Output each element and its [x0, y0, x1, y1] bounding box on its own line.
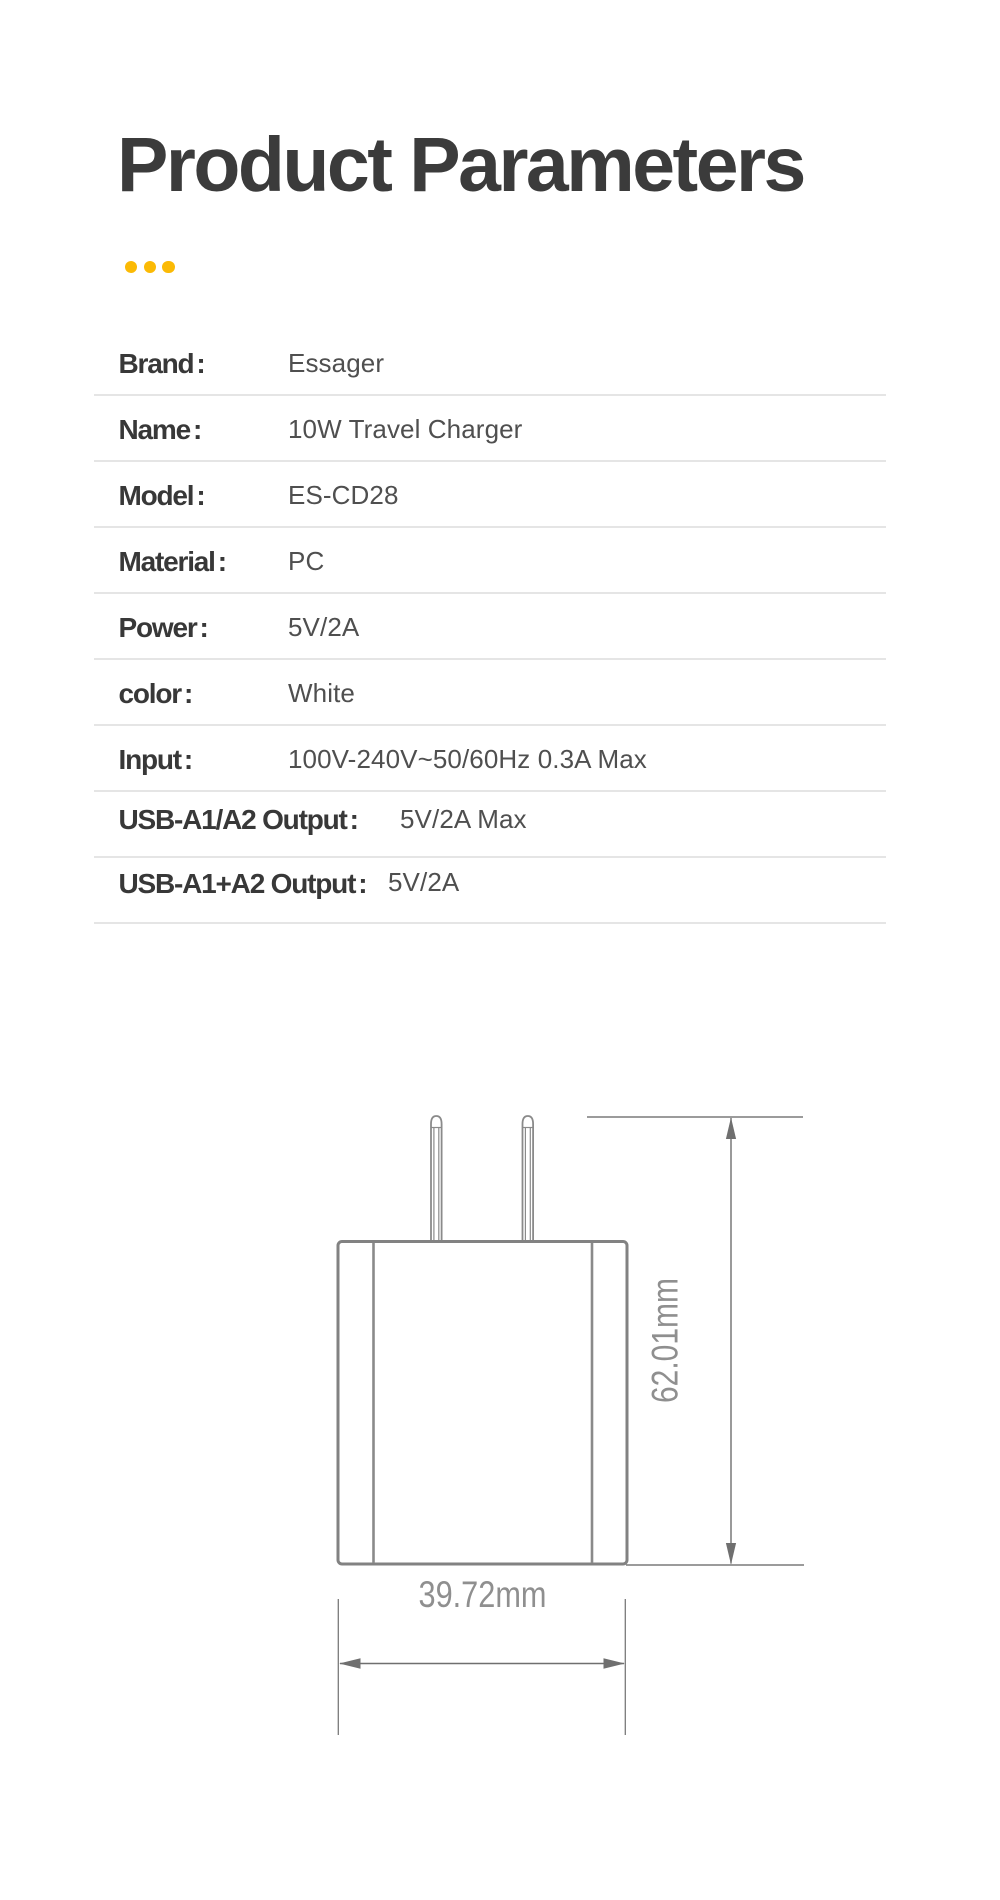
svg-text:39.72mm: 39.72mm	[419, 1574, 547, 1615]
svg-text:62.01mm: 62.01mm	[645, 1278, 686, 1403]
